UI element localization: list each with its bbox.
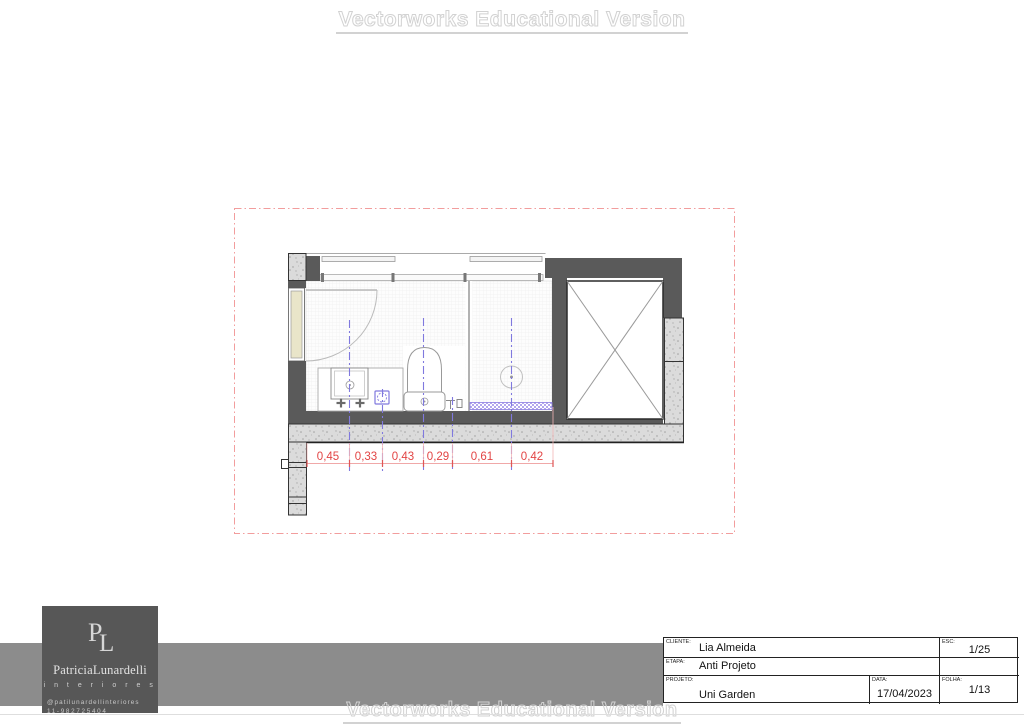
elevator-shaft [567, 281, 663, 419]
dimension-label: 0,29 [427, 451, 449, 463]
logo-monogram-l: L [99, 630, 114, 658]
dimension-label: 0,33 [355, 451, 377, 463]
educational-watermark-bottom: Vectorworks Educational Version [0, 699, 1024, 722]
window-mullion [392, 273, 395, 282]
window-mullion [321, 273, 324, 282]
projeto-label: PROJETO: [666, 677, 693, 683]
logo-subtitle: i n t e r i o r e s [42, 682, 158, 689]
educational-watermark-bottom-text: Vectorworks Educational Version [343, 699, 680, 724]
logo-studio-name: PatriciaLunardelli [42, 663, 158, 678]
dimension-label: 0,43 [392, 451, 414, 463]
window-mullion [538, 273, 541, 282]
dimension-label: 0,61 [471, 451, 493, 463]
studio-logo: P L PatriciaLunardelli i n t e r i o r e… [42, 606, 158, 713]
title-block-etapa-cell: ETAPA: Anti Projeto [664, 658, 940, 676]
title-block: CLIENTE: Lia Almeida ESC: 1/25 ETAPA: An… [663, 637, 1018, 703]
title-block-empty-cell [940, 658, 1019, 676]
etapa-label: ETAPA: [666, 659, 685, 665]
cliente-value: Lia Almeida [699, 642, 756, 654]
cliente-label: CLIENTE: [666, 639, 691, 645]
logo-monogram: P L [42, 606, 158, 656]
dimension-label: 0,45 [317, 451, 339, 463]
data-label: DATA: [872, 677, 887, 683]
title-block-esc-cell: ESC: 1/25 [940, 638, 1019, 658]
window-mullion [464, 273, 467, 282]
folha-label: FOLHA: [942, 677, 962, 683]
sheet-page: Vectorworks Educational Version [0, 0, 1024, 724]
esc-value: 1/25 [940, 644, 1019, 656]
page-edge-line [0, 714, 1024, 715]
vanity-sink [318, 368, 403, 411]
folha-value: 1/13 [940, 684, 1019, 696]
toilet [404, 348, 445, 412]
door-leaf [291, 291, 302, 358]
title-block-cliente-cell: CLIENTE: Lia Almeida [664, 638, 940, 658]
etapa-value: Anti Projeto [699, 660, 756, 672]
dimension-label: 0,42 [521, 451, 543, 463]
window-wall [306, 254, 545, 283]
